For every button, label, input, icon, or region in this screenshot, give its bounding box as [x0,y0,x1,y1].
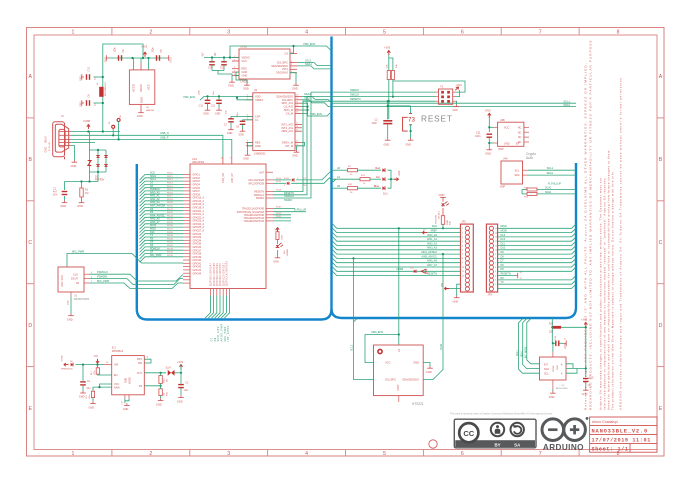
svg-text:Arturo Guadalupi: Arturo Guadalupi [592,420,618,424]
svg-text:SCL1: SCL1 [305,58,312,62]
svg-text:GND: GND [413,361,419,365]
svg-text:3: 3 [230,158,231,160]
svg-text:SDA/SDI/SDO: SDA/SDI/SDO [276,94,293,98]
svg-text:A: A [659,74,663,80]
svg-text:P0.35: P0.35 [167,255,173,257]
svg-text:TRACED3/GPIO33: TRACED3/GPIO33 [244,220,265,223]
svg-text:GND: GND [439,193,445,197]
svg-text:P0.15: P0.15 [167,189,173,191]
svg-text:10: 10 [462,267,464,269]
svg-text:CS_M: CS_M [286,111,293,115]
svg-text:D-: D- [108,121,111,124]
svg-text:SWDIO: SWDIO [256,197,264,200]
svg-text:GND: GND [126,378,128,383]
svg-text:P0.32: P0.32 [167,245,173,247]
svg-text:2: 2 [149,451,152,457]
svg-text:GND: GND [242,70,248,74]
svg-text:GND: GND [60,204,66,208]
svg-text:GND: GND [405,143,411,147]
svg-text:VIN: VIN [114,364,118,367]
svg-text:AIN5_A5/SCL: AIN5_A5/SCL [421,255,437,258]
svg-text:Sheet: 1/1: Sheet: 1/1 [592,447,629,453]
svg-text:C15: C15 [589,377,594,380]
svg-text:15: 15 [495,228,497,230]
svg-text:C: C [28,240,32,246]
svg-text:17: 17 [296,123,298,125]
svg-text:SDA1: SDA1 [440,343,443,350]
svg-text:VDD_ENV: VDD_ENV [183,95,196,99]
svg-text:Red: Red [375,167,380,170]
svg-text:10: 10 [106,362,108,364]
svg-text:SA: SA [514,442,521,447]
svg-text:GND: GND [80,75,83,81]
svg-text:GND: GND [137,114,143,118]
svg-text:2: 2 [149,29,152,35]
svg-text:BST: BST [137,358,142,361]
svg-text:AAM: AAM [114,387,119,390]
svg-text:P0.29: P0.29 [167,235,173,237]
svg-text:NINA-B306: NINA-B306 [192,161,205,164]
svg-text:TX: TX [501,281,505,284]
svg-text:OUT: OUT [137,372,143,375]
svg-text:P0.10: P0.10 [167,173,173,175]
svg-text:DNP: DNP [500,186,505,189]
svg-text:BLM18EG101: BLM18EG101 [105,81,107,96]
svg-text:CAP: CAP [255,114,261,118]
svg-text:HTS221: HTS221 [412,402,424,406]
svg-text:5: 5 [383,29,386,35]
svg-text:D- D+ ID: D- D+ ID [49,142,51,151]
svg-text:MISO: MISO [501,225,507,228]
svg-text:GND: GND [156,403,162,407]
svg-text:9: 9 [291,61,292,63]
svg-text:100n: 100n [114,47,117,53]
svg-text:AIN3_A3: AIN3_A3 [427,247,438,250]
svg-text:RESETN: RESETN [501,273,511,276]
svg-text:AIN6_A6: AIN6_A6 [427,260,438,263]
svg-text:P0.13: P0.13 [167,183,173,185]
svg-text:GND: GND [170,57,173,63]
svg-text:EP: EP [516,142,520,145]
svg-text:ON DL1: ON DL1 [439,210,441,219]
svg-text:8: 8 [462,258,463,260]
svg-text:DOUT: DOUT [71,278,79,281]
svg-text:8: 8 [617,29,620,35]
svg-text:CS: CS [284,51,288,55]
svg-text:4: 4 [495,275,496,277]
svg-text:C13: C13 [220,67,225,70]
svg-text:D12: D12 [501,238,506,241]
svg-text:RX: RX [501,277,505,280]
svg-text:SDO_M: SDO_M [284,108,293,112]
svg-text:VIN: VIN [94,356,98,358]
svg-text:3: 3 [227,451,230,457]
svg-text:GND: GND [238,134,244,137]
svg-text:Auth: Auth [526,156,533,160]
svg-text:P0.19: P0.19 [167,202,173,204]
svg-text:E: E [659,406,663,412]
svg-text:GND: GND [228,84,234,88]
svg-text:GND: GND [80,101,83,107]
svg-text:VCC: VCC [147,84,151,90]
svg-text:GND: GND [243,87,249,91]
svg-text:GND: GND [549,395,555,399]
svg-text:VBUS: VBUS [45,136,48,143]
svg-text:SDA1: SDA1 [545,191,552,194]
svg-text:FB: FB [139,385,143,388]
svg-text:100n: 100n [372,122,378,125]
svg-text:7: 7 [495,263,496,265]
svg-text:11: 11 [495,245,497,247]
svg-text:GND: GND [384,143,390,147]
svg-text:GND: GND [227,132,233,135]
svg-text:P0.34: P0.34 [167,252,173,254]
svg-text:GND VDD: GND VDD [61,275,64,287]
svg-text:GND: GND [504,142,510,145]
svg-text:VUSB: VUSB [396,268,403,271]
svg-text:U4B: U4B [500,119,505,122]
svg-text:C11: C11 [211,105,216,108]
svg-text:+3V3: +3V3 [177,360,184,364]
svg-text:100k: 100k [94,371,96,375]
svg-text:8: 8 [291,64,292,66]
svg-text:P0.20: P0.20 [167,206,173,208]
svg-text:QSPID2/GPIO49: QSPID2/GPIO49 [217,263,219,286]
svg-text:GPIO44: GPIO44 [193,272,202,275]
svg-text:U4A: U4A [503,157,508,160]
svg-text:INT_M: INT_M [285,144,293,148]
svg-text:AIN0_A0: AIN0_A0 [427,234,438,237]
svg-text:RES: RES [242,67,248,71]
svg-text:YELLOW: YELLOW [435,214,437,224]
svg-text:AIN2_A2: AIN2_A2 [427,242,438,245]
svg-text:VCC: VCC [242,59,248,63]
svg-text:SDA1: SDA1 [546,172,553,175]
svg-text:SCL/SPC: SCL/SPC [282,98,293,102]
svg-text:4: 4 [234,70,235,72]
svg-text:SWDIO: SWDIO [284,199,292,202]
svg-text:B: B [659,157,663,163]
svg-text:4u7: 4u7 [202,52,205,57]
svg-text:VDDIO: VDDIO [242,55,250,59]
svg-text:LG: LG [337,176,340,179]
svg-text:USB_P: USB_P [160,135,169,139]
svg-text:VBUS: VBUS [139,84,143,92]
svg-text:5: 5 [234,74,235,76]
svg-text:GND: GND [123,408,129,411]
svg-text:DRDY_M: DRDY_M [282,140,293,144]
svg-text:INT1_A/G: INT1_A/G [281,122,293,126]
svg-text:6: 6 [461,29,464,35]
svg-text:12: 12 [221,158,223,160]
svg-text:23: 23 [296,95,298,97]
svg-text:GND: GND [292,155,298,158]
svg-text:B: B [28,157,32,163]
svg-text:GND: GND [71,164,77,168]
svg-text:P0.24: P0.24 [167,219,173,221]
svg-text:P0.22: P0.22 [167,212,173,214]
svg-text:P0.26: P0.26 [167,225,173,227]
svg-text:1KV: 1KV [53,194,58,197]
svg-text:VDD: VDD [255,94,261,98]
svg-text:AIN1_A1: AIN1_A1 [427,238,438,241]
svg-text:ARDUINO: ARDUINO [543,443,584,452]
svg-text:4: 4 [305,451,308,457]
svg-text:20: 20 [296,105,298,107]
svg-text:USB_N: USB_N [160,131,169,135]
svg-text:1: 1 [71,29,74,35]
svg-text:GND: GND [79,396,85,399]
svg-text:+3V3: +3V3 [581,318,588,322]
svg-text:21: 21 [296,102,298,104]
svg-text:APDS-9960: APDS-9960 [556,387,568,390]
svg-text:P0.27: P0.27 [167,229,173,231]
svg-text:GND: GND [105,57,108,63]
svg-text:1: 1 [462,228,463,230]
svg-text:NFC2/GPIO29: NFC2/GPIO29 [248,182,264,185]
svg-text:SWCLK: SWCLK [350,93,359,97]
svg-text:QSPID1/GPIO48: QSPID1/GPIO48 [214,263,216,286]
svg-text:SW: SW [138,362,143,365]
svg-text:RESET: RESET [421,114,453,123]
svg-text:GND: GND [140,97,144,103]
svg-text:DNP: DNP [499,148,504,151]
svg-text:AREF: AREF [430,230,437,233]
svg-text:CS_A/G: CS_A/G [283,105,293,109]
svg-text:LB: LB [337,185,340,188]
svg-text:P0.31: P0.31 [167,242,173,244]
svg-text:5: 5 [462,245,463,247]
svg-text:VDD_ENV: VDD_ENV [310,112,323,116]
svg-text:USB_DP: USB_DP [231,173,234,183]
svg-text:100R: 100R [282,235,284,240]
svg-text:Grn: Grn [376,176,381,179]
svg-text:SDA/SDI/SDO: SDA/SDI/SDO [271,64,288,68]
svg-text:VDD_ENV: VDD_ENV [303,42,316,46]
svg-text:GND: GND [485,151,491,155]
svg-text:GND: GND [453,109,459,112]
svg-text:3: 3 [495,280,496,282]
svg-text:GND: GND [45,147,48,153]
svg-text:8: 8 [495,258,496,260]
svg-text:SWDCLK: SWDCLK [284,195,295,198]
svg-text:USB_DM: USB_DM [222,173,225,183]
svg-text:AGND: AGND [129,377,132,384]
svg-text:BY: BY [494,442,500,447]
svg-text:VUSB: VUSB [61,355,63,361]
svg-text:P0.18: P0.18 [276,190,282,192]
svg-text:12: 12 [462,275,464,277]
svg-text:7: 7 [539,29,542,35]
svg-text:P0.12: P0.12 [167,179,173,181]
svg-text:VDD_ENV: VDD_ENV [371,330,384,334]
svg-text:C21: C21 [476,131,481,134]
svg-text:EN: EN [114,374,118,377]
svg-text:14: 14 [296,141,298,143]
svg-text:REGARDING PRODUCTS, INCLUDING: REGARDING PRODUCTS, INCLUDING BUT NOT LI… [589,39,593,410]
svg-text:9: 9 [462,263,463,265]
svg-text:6: 6 [461,451,464,457]
svg-text:4: 4 [305,29,308,35]
svg-text:100n: 100n [89,395,91,399]
svg-text:13: 13 [520,272,522,274]
svg-text:9: 9 [495,254,496,256]
svg-text:7: 7 [462,254,463,256]
svg-text:GND: GND [77,204,83,208]
svg-text:GND: GND [273,261,279,264]
svg-text:SDA1: SDA1 [563,103,570,107]
svg-text:P0.31: P0.31 [276,216,282,218]
svg-text:22: 22 [296,98,298,100]
svg-text:P0.16: P0.16 [167,192,173,194]
svg-text:GND: GND [243,158,249,161]
svg-text:P0.07: P0.07 [276,207,282,209]
svg-text:A: A [28,74,32,80]
svg-text:100n: 100n [68,299,70,305]
svg-text:22R: 22R [549,332,554,334]
svg-text:SDA1: SDA1 [305,62,312,66]
svg-text:MIA-803: MIA-803 [146,109,155,112]
svg-text:Blue: Blue [374,185,380,188]
svg-text:P0.21: P0.21 [167,209,173,211]
svg-text:P0.14: P0.14 [167,186,173,188]
svg-text:C: C [659,240,663,246]
svg-text:14: 14 [495,232,497,234]
svg-text:2: 2 [234,59,235,61]
svg-text:D: D [28,323,32,329]
svg-text:3: 3 [227,29,230,35]
svg-text:P0.23: P0.23 [167,215,173,217]
svg-text:100n: 100n [152,47,155,53]
svg-text:SJ11: SJ11 [284,178,290,180]
svg-text:NC: NC [518,131,522,134]
svg-text:MIC_PWR: MIC_PWR [97,279,109,283]
svg-text:SCL1: SCL1 [564,99,571,103]
svg-text:12: 12 [495,241,497,243]
svg-text:NANO33BLE_V2.0: NANO33BLE_V2.0 [592,428,649,434]
svg-text:CLK: CLK [73,273,78,276]
svg-text:100R: 100R [447,220,449,225]
svg-text:12: 12 [520,278,522,280]
svg-text:SDO_A/G: SDO_A/G [281,101,293,105]
svg-text:C17: C17 [121,401,123,404]
svg-text:ARDUINO and other Arduino bran: ARDUINO and other Arduino brands and log… [619,77,623,410]
svg-text:GND: GND [177,400,183,404]
svg-text:11: 11 [462,271,464,273]
svg-text:AIN4_A4/SDA: AIN4_A4/SDA [421,251,437,254]
svg-text:IC3: IC3 [112,347,117,350]
svg-text:R_PULLUP: R_PULLUP [548,182,561,185]
svg-text:7: 7 [539,451,542,457]
svg-text:GND: GND [292,87,298,91]
svg-text:GND: GND [203,113,209,116]
svg-text:GND: GND [557,365,559,370]
svg-text:GND: GND [453,300,459,304]
svg-text:11: 11 [147,357,149,359]
svg-text:PDMCLK: PDMCLK [97,270,108,274]
svg-text:GND: GND [426,370,432,374]
svg-text:+3V3: +3V3 [141,45,148,49]
svg-text:15: 15 [296,130,298,132]
svg-text:18: 18 [296,112,298,114]
svg-text:100n: 100n [475,135,481,138]
svg-text:RESETN: RESETN [350,97,361,101]
svg-text:VCC: VCC [114,383,119,386]
svg-text:SDA1: SDA1 [304,92,311,96]
svg-text:4: 4 [462,241,463,243]
svg-text:RESETN: RESETN [427,273,437,276]
svg-text:VCC: VCC [385,361,391,365]
svg-text:SCK: SCK [432,225,437,228]
svg-text:VDDIO: VDDIO [255,98,263,102]
svg-text:10n: 10n [214,52,217,57]
svg-text:5: 5 [495,271,496,273]
svg-text:RES: RES [255,140,261,144]
svg-text:SCL/SPC: SCL/SPC [385,378,396,382]
svg-text:B_PULLUP: B_PULLUP [294,209,307,212]
svg-text:P0.10: P0.10 [276,178,282,180]
svg-text:QSPICS/GPIO51: QSPICS/GPIO51 [223,262,225,286]
svg-text:INT1: INT1 [282,67,288,71]
svg-text:GND: GND [242,73,248,77]
svg-text:P0.30: P0.30 [167,238,173,240]
svg-text:+3V3: +3V3 [456,83,463,87]
svg-text:+3V3: +3V3 [485,109,492,113]
svg-text:GREEN: GREEN [287,248,289,256]
svg-text:GND: GND [255,144,261,148]
svg-text:3: 3 [462,237,463,239]
svg-text:MP34DT06TR: MP34DT06TR [74,298,90,301]
svg-text:LR: LR [76,282,79,285]
svg-text:P0.18: P0.18 [167,199,173,201]
svg-text:P0.33: P0.33 [167,248,173,250]
svg-text:VCCO: VCCO [132,83,136,92]
svg-text:10: 10 [495,250,497,252]
svg-text:C10: C10 [88,66,91,71]
svg-text:CC: CC [463,429,474,438]
svg-text:SDA: SDA [514,174,519,177]
svg-text:16: 16 [296,126,298,128]
svg-text:DRDY: DRDY [397,384,400,391]
svg-text:E: E [28,406,32,412]
svg-text:INT_APDS: INT_APDS [227,325,230,341]
svg-text:The product information on the: The product information on the Web Site … [611,170,615,410]
svg-text:MPM3610: MPM3610 [112,350,124,353]
svg-text:100n: 100n [237,112,239,118]
svg-text:6: 6 [462,250,463,252]
svg-text:GND: GND [67,317,73,321]
svg-text:DEN_A/G: DEN_A/G [282,129,293,133]
svg-text:LR: LR [337,167,340,170]
svg-text:D: D [659,323,663,329]
svg-text:INT: INT [544,363,548,366]
svg-text:SCL1: SCL1 [547,167,554,170]
svg-text:NC: NC [518,136,522,139]
svg-text:JP3: JP3 [488,294,493,297]
svg-text:JP2: JP2 [462,221,467,224]
svg-text:MIC_PWR: MIC_PWR [150,254,162,257]
svg-text:SCL: SCL [544,372,549,375]
svg-text:SWDIO: SWDIO [350,88,359,92]
svg-text:+3V3: +3V3 [398,170,401,176]
svg-text:QSPID0/GPIO47: QSPID0/GPIO47 [211,263,213,286]
svg-text:GND: GND [564,343,567,349]
svg-text:P0.11: P0.11 [276,181,282,183]
svg-text:+3V3: +3V3 [384,45,391,49]
svg-text:73: 73 [408,116,415,123]
svg-text:D10: D10 [501,247,506,250]
svg-text:AIN7_A7: AIN7_A7 [427,264,438,267]
